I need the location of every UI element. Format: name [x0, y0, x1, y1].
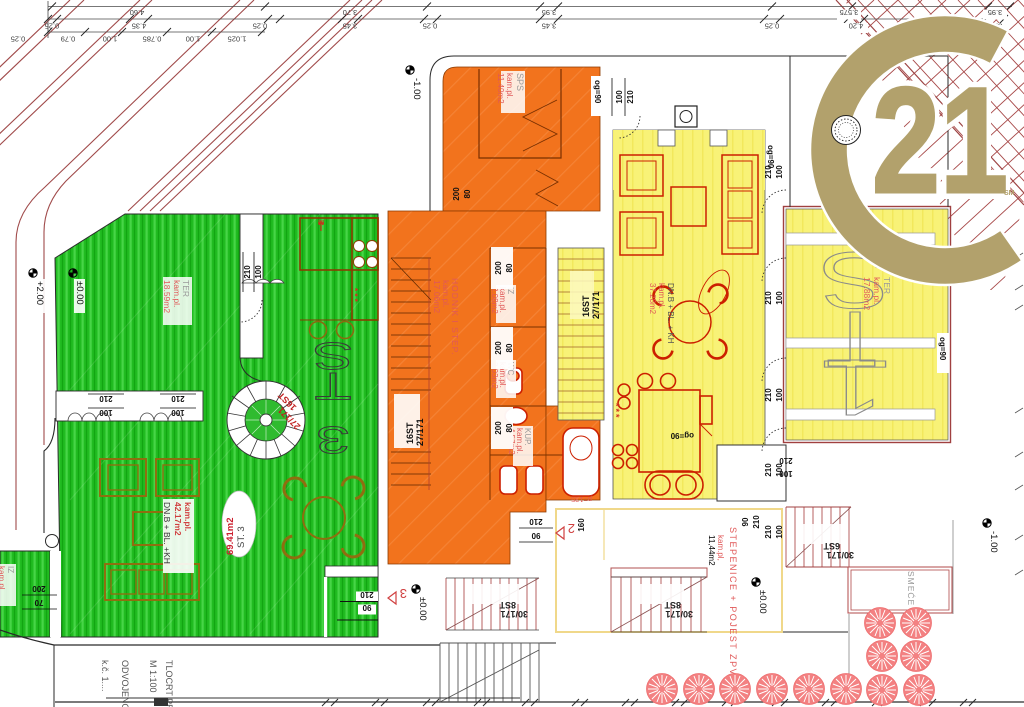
- svg-text:og=90: og=90: [593, 80, 602, 104]
- svg-text:210: 210: [360, 590, 374, 599]
- svg-text:21: 21: [872, 56, 1008, 224]
- svg-text:100: 100: [775, 291, 784, 305]
- svg-text:210: 210: [529, 517, 543, 526]
- svg-text:210: 210: [764, 388, 773, 402]
- svg-text:3.70: 3.70: [343, 8, 358, 17]
- svg-text:210: 210: [99, 394, 113, 403]
- svg-text:30/171: 30/171: [826, 550, 854, 560]
- svg-text:kam.pl,: kam.pl,: [716, 535, 725, 561]
- svg-text:SM: SM: [1004, 190, 1015, 197]
- svg-text:ODVOJENO: ODVOJENO: [120, 660, 130, 707]
- svg-text:og=90: og=90: [670, 431, 694, 440]
- svg-text:200: 200: [494, 421, 503, 435]
- svg-text:2: 2: [568, 521, 575, 536]
- svg-text:M 1:100: M 1:100: [148, 660, 158, 693]
- svg-text:11,44m2: 11,44m2: [707, 535, 716, 566]
- svg-text:8ST: 8ST: [499, 600, 516, 610]
- svg-text:kam.pl.: kam.pl.: [872, 277, 882, 304]
- svg-text:210: 210: [171, 394, 185, 403]
- svg-text:SMEĆE: SMEĆE: [906, 571, 916, 606]
- svg-text:100: 100: [775, 525, 784, 539]
- svg-text:og=90: og=90: [938, 337, 947, 361]
- svg-text:3: 3: [316, 419, 350, 462]
- svg-text:±0.00: ±0.00: [757, 590, 768, 614]
- svg-text:p=135: p=135: [571, 495, 592, 504]
- svg-text:80: 80: [505, 423, 514, 432]
- svg-text:200: 200: [494, 341, 503, 355]
- svg-text:STEPENICE + POJEST ZPV2: STEPENICE + POJEST ZPV2: [728, 527, 738, 683]
- svg-text:0.25: 0.25: [423, 22, 438, 31]
- svg-text:0.785: 0.785: [143, 35, 162, 44]
- svg-text:210: 210: [626, 90, 635, 104]
- svg-text:TER: TER: [882, 277, 892, 294]
- svg-text:0.79: 0.79: [61, 35, 76, 44]
- svg-text:210: 210: [764, 291, 773, 305]
- svg-text:210: 210: [779, 456, 793, 465]
- svg-text:* * *: * * *: [350, 288, 359, 303]
- svg-text:k.č. 1....: k.č. 1....: [100, 660, 110, 692]
- svg-text:30/171: 30/171: [500, 609, 528, 619]
- svg-text:8ST: 8ST: [664, 600, 681, 610]
- svg-text:80: 80: [505, 263, 514, 272]
- svg-text:***: ***: [611, 403, 621, 420]
- svg-text:90: 90: [741, 517, 750, 526]
- svg-text:11.40m2: 11.40m2: [496, 73, 505, 104]
- svg-text:18.59m2: 18.59m2: [162, 280, 172, 313]
- svg-text:4.60: 4.60: [130, 8, 145, 17]
- svg-text:kam.pl.: kam.pl.: [0, 566, 6, 592]
- svg-text:69.41m2: 69.41m2: [225, 517, 236, 555]
- svg-text:1.00: 1.00: [103, 35, 118, 44]
- svg-text:3.575: 3.575: [840, 8, 859, 17]
- svg-text:16ST: 16ST: [405, 422, 415, 444]
- svg-text:70: 70: [34, 598, 43, 607]
- svg-text:kam.pl.: kam.pl.: [172, 280, 182, 307]
- svg-text:30/171: 30/171: [665, 609, 693, 619]
- svg-text:kam.pl.: kam.pl.: [183, 502, 193, 531]
- svg-text:+2.00: +2.00: [34, 281, 45, 305]
- svg-text:80: 80: [505, 343, 514, 352]
- svg-text:80: 80: [463, 189, 472, 198]
- svg-text:1: 1: [823, 342, 883, 431]
- svg-text:90: 90: [362, 603, 371, 612]
- svg-text:3.95: 3.95: [988, 8, 1003, 17]
- svg-text:160: 160: [577, 518, 586, 532]
- svg-text:SPS: SPS: [515, 73, 525, 91]
- svg-text:4.20: 4.20: [849, 22, 864, 31]
- svg-text:±0.00: ±0.00: [417, 597, 428, 621]
- svg-text:0.25: 0.25: [11, 35, 26, 44]
- svg-text:17.06m2: 17.06m2: [432, 280, 442, 313]
- svg-text:100: 100: [254, 265, 263, 279]
- svg-text:kam.pl.: kam.pl.: [505, 73, 514, 99]
- svg-text:0.25: 0.25: [253, 22, 268, 31]
- svg-text:IZ: IZ: [6, 566, 15, 573]
- svg-text:210: 210: [243, 265, 252, 279]
- svg-text:-1.00: -1.00: [411, 78, 422, 100]
- svg-text:200: 200: [494, 261, 503, 275]
- svg-text:27/171: 27/171: [591, 291, 601, 319]
- svg-text:17.88m2: 17.88m2: [862, 277, 872, 310]
- svg-text:T: T: [314, 365, 351, 408]
- svg-text:ST. 3: ST. 3: [236, 526, 247, 548]
- svg-text:3: 3: [400, 586, 407, 601]
- svg-text:200: 200: [32, 584, 46, 593]
- svg-text:og=90: og=90: [766, 145, 775, 169]
- svg-text:1.00: 1.00: [186, 35, 201, 44]
- svg-text:6ST: 6ST: [823, 541, 840, 551]
- svg-text:100: 100: [779, 469, 793, 478]
- svg-text:kam.pl.: kam.pl.: [657, 283, 666, 309]
- svg-text:100: 100: [171, 408, 185, 417]
- svg-text:4.35: 4.35: [132, 22, 147, 31]
- svg-text:M: M: [318, 218, 324, 225]
- svg-text:±0.00: ±0.00: [74, 281, 85, 305]
- svg-text:200: 200: [452, 187, 461, 201]
- svg-text:3.45: 3.45: [343, 22, 358, 31]
- svg-text:90: 90: [531, 531, 540, 540]
- svg-text:2.08m2: 2.08m2: [490, 287, 499, 314]
- svg-text:16ST: 16ST: [581, 295, 591, 317]
- svg-text:3.45: 3.45: [542, 22, 557, 31]
- svg-text:27/171: 27/171: [415, 418, 425, 446]
- svg-text:42.17m2: 42.17m2: [173, 502, 183, 536]
- svg-text:DN.B + BL. +KH: DN.B + BL. +KH: [162, 502, 172, 564]
- svg-text:37.28m2: 37.28m2: [648, 283, 657, 315]
- svg-text:1.025: 1.025: [228, 35, 247, 44]
- svg-text:210: 210: [752, 515, 761, 529]
- svg-text:0.25: 0.25: [45, 22, 60, 31]
- svg-text:210: 210: [764, 463, 773, 477]
- svg-text:210: 210: [764, 525, 773, 539]
- svg-text:0.25: 0.25: [765, 22, 780, 31]
- svg-text:100: 100: [99, 408, 113, 417]
- svg-text:DN.B + BL. + KH: DN.B + BL. + KH: [666, 283, 675, 344]
- svg-text:3.95: 3.95: [542, 8, 557, 17]
- svg-text:100: 100: [775, 165, 784, 179]
- svg-text:100: 100: [615, 90, 624, 104]
- svg-text:100: 100: [775, 388, 784, 402]
- svg-text:-1.00: -1.00: [988, 531, 999, 553]
